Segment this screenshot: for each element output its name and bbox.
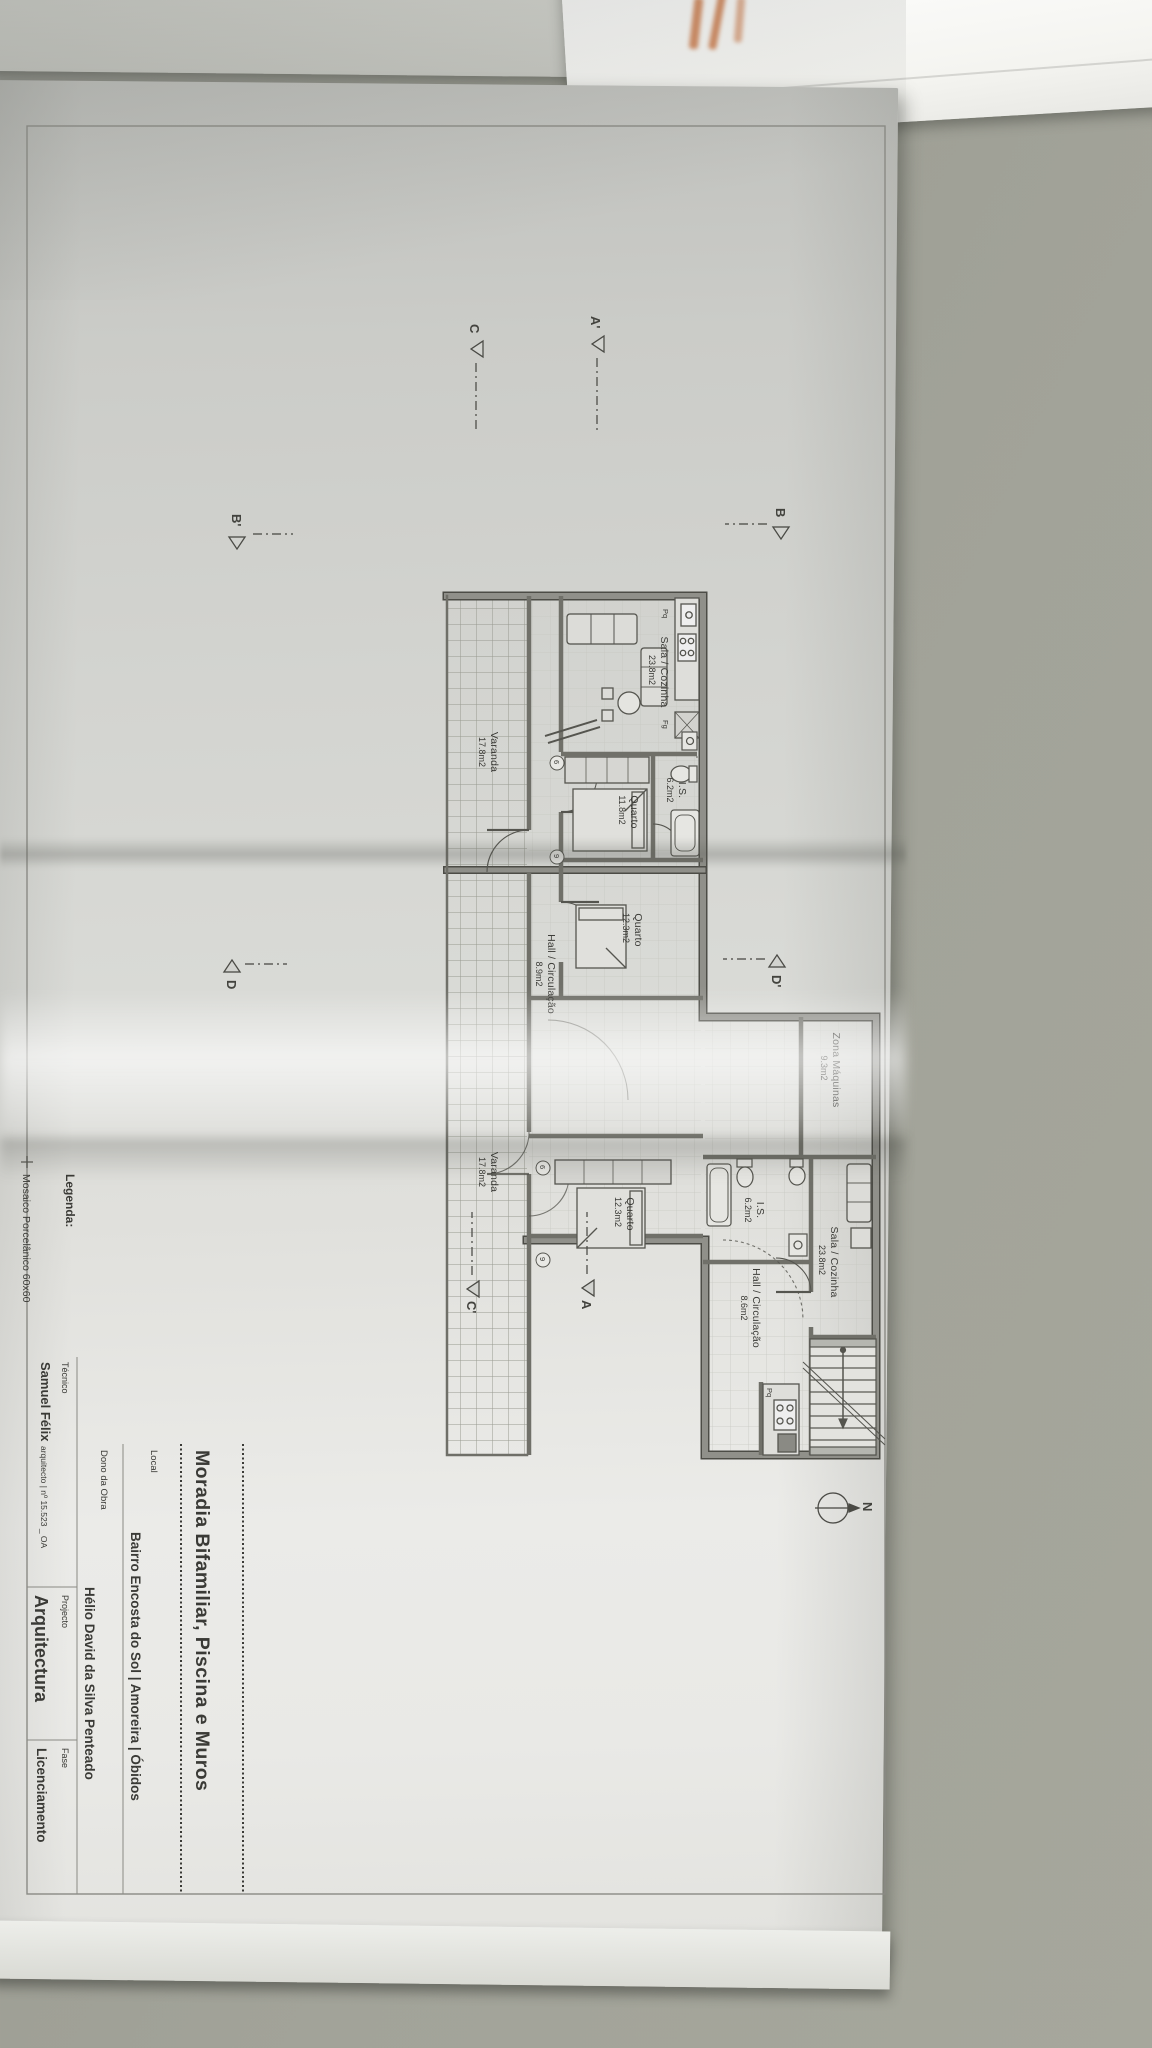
svg-text:6: 6: [538, 1165, 547, 1169]
svg-text:9: 9: [538, 1257, 547, 1261]
legend: Legenda: Mosaico Porcelânico 60x60: [20, 1156, 77, 1303]
appliance-tag: Pq: [765, 1388, 774, 1397]
svg-text:9: 9: [552, 854, 561, 858]
svg-text:Sala / Cozinha: Sala / Cozinha: [658, 636, 670, 707]
section-marker-b: B: [725, 508, 789, 539]
background-sheet: [0, 0, 600, 77]
architectural-drawing: Pq Fg: [13, 112, 893, 1932]
svg-text:Varanda: Varanda: [488, 732, 500, 772]
field-label-dono: Dono da Obra: [98, 1450, 109, 1510]
stairs: [803, 1339, 885, 1455]
svg-text:17.8m2: 17.8m2: [477, 737, 487, 767]
section-marker-d-prime: D': [723, 955, 785, 987]
svg-text:Varanda: Varanda: [488, 1152, 500, 1192]
field-value-tecnico: Samuel Félix: [38, 1362, 53, 1442]
svg-text:6: 6: [552, 760, 561, 764]
svg-text:Hall / Circulação: Hall / Circulação: [750, 1268, 762, 1348]
svg-text:N: N: [860, 1502, 875, 1511]
field-label-tecnico: Técnico: [60, 1362, 70, 1394]
legend-title: Legenda:: [63, 1174, 77, 1227]
svg-text:6.2m2: 6.2m2: [665, 777, 675, 802]
svg-text:D: D: [224, 980, 239, 989]
field-detail-tecnico: arquitecto | nº 15.523 _ OA: [39, 1446, 49, 1549]
section-marker-c: C: [467, 324, 483, 430]
svg-text:B': B': [229, 514, 244, 526]
svg-text:C': C': [464, 1301, 479, 1313]
appliance-tag: Fg: [661, 720, 670, 729]
svg-text:C: C: [467, 324, 482, 334]
svg-text:I.S.: I.S.: [676, 782, 688, 799]
svg-text:B: B: [773, 508, 788, 517]
svg-text:D': D': [769, 975, 784, 987]
room-label-quarto2-u1: Quarto 12.3m2: [621, 913, 644, 947]
field-value-local: Bairro Encosta do Sol | Amoreira | Óbido…: [128, 1532, 143, 1801]
svg-text:6.2m2: 6.2m2: [743, 1197, 753, 1222]
svg-text:11.8m2: 11.8m2: [617, 795, 627, 824]
room-label-varanda1: Varanda 17.8m2: [477, 732, 500, 772]
sala2-furniture: [847, 1164, 871, 1248]
svg-text:Sala / Cozinha: Sala / Cozinha: [828, 1226, 840, 1297]
appliance-tag: Pq: [661, 609, 670, 618]
title-block: Moradia Bifamiliar, Piscina e Muros Loca…: [27, 1357, 243, 1894]
svg-text:Quarto: Quarto: [628, 795, 640, 828]
kitchen-unit1: [675, 598, 699, 738]
legend-item: Mosaico Porcelânico 60x60: [20, 1174, 32, 1303]
legend-tile-symbol: [21, 1156, 33, 1168]
section-marker-a-prime: A': [588, 316, 604, 430]
handwritten-orange-mark: [734, 0, 746, 43]
handwritten-orange-mark: [689, 0, 704, 50]
field-value-dono: Hélio David da Silva Penteado: [82, 1587, 97, 1780]
svg-text:Zona Máquinas: Zona Máquinas: [830, 1033, 842, 1108]
quarto2-furniture-unit1: [576, 905, 626, 968]
room-label-quarto1: Quarto 11.8m2: [617, 795, 640, 828]
room-label-quarto-u2: Quarto 12.3m2: [613, 1197, 636, 1231]
north-arrow-icon: N: [815, 1493, 875, 1523]
svg-text:23.8m2: 23.8m2: [647, 655, 657, 685]
svg-text:Quarto: Quarto: [624, 1197, 636, 1230]
section-marker-b-prime: B': [229, 514, 293, 549]
varanda-tile-grid: [447, 596, 527, 1455]
field-label-projecto: Projecto: [60, 1595, 70, 1628]
field-label-fase: Fase: [60, 1748, 70, 1768]
field-value-projecto: Arquitectura: [31, 1595, 51, 1703]
svg-text:I.S.: I.S.: [754, 1202, 766, 1219]
project-title: Moradia Bifamiliar, Piscina e Muros: [191, 1450, 213, 1791]
svg-text:Quarto: Quarto: [632, 913, 644, 946]
handwritten-orange-mark: [708, 0, 727, 50]
svg-text:12.3m2: 12.3m2: [621, 913, 631, 943]
field-value-fase: Licenciamento: [34, 1748, 49, 1843]
svg-text:9.3m2: 9.3m2: [819, 1055, 829, 1080]
svg-text:8.9m2: 8.9m2: [534, 961, 544, 986]
svg-text:A: A: [579, 1300, 594, 1310]
svg-text:23.8m2: 23.8m2: [817, 1245, 827, 1275]
room-label-varanda2: Varanda 17.8m2: [477, 1152, 500, 1192]
desk-scene: Pq Fg: [0, 0, 1152, 2048]
svg-text:12.3m2: 12.3m2: [613, 1197, 623, 1227]
svg-text:A': A': [588, 316, 603, 328]
svg-text:Hall / Circulação: Hall / Circulação: [545, 934, 557, 1014]
section-marker-d: D: [224, 960, 287, 989]
svg-text:8.6m2: 8.6m2: [739, 1295, 749, 1320]
field-label-local: Local: [148, 1450, 159, 1473]
svg-text:17.8m2: 17.8m2: [477, 1157, 487, 1187]
